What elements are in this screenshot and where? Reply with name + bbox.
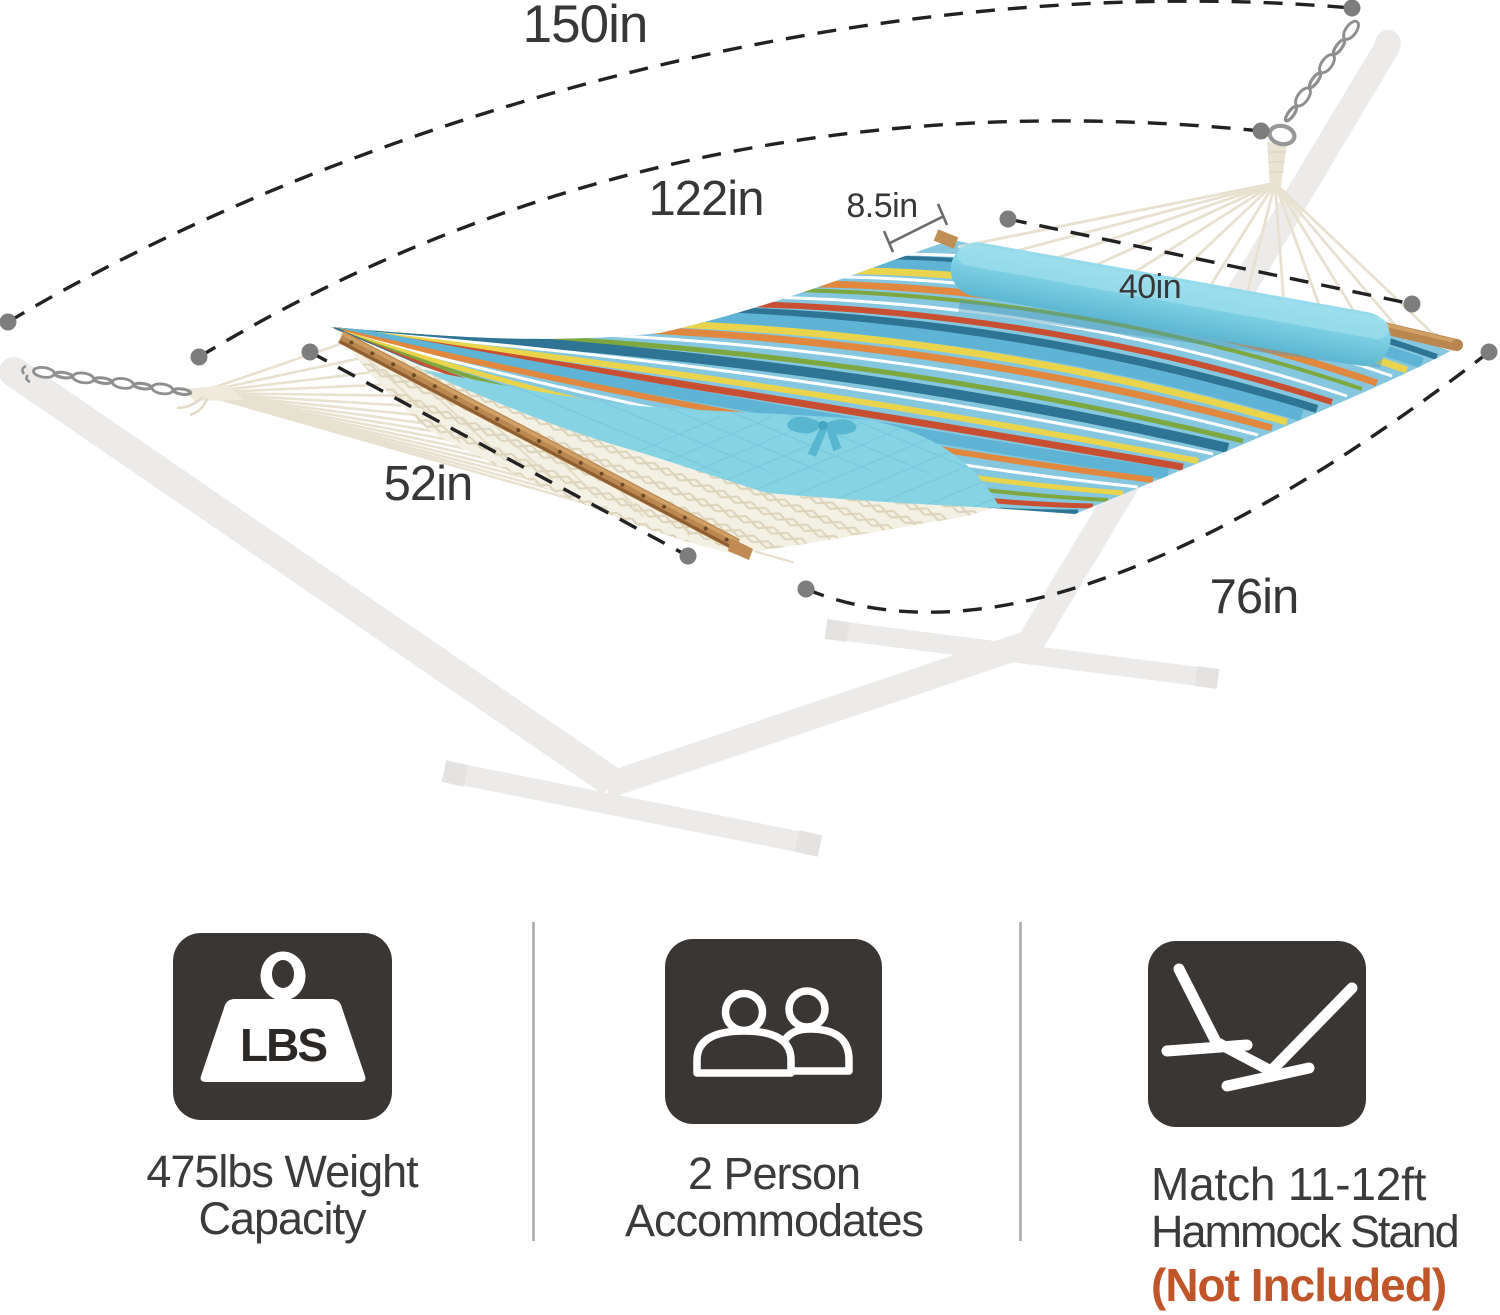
svg-text:150in: 150in (523, 0, 648, 54)
svg-text:52in: 52in (384, 457, 473, 511)
svg-text:8.5in: 8.5in (846, 187, 917, 225)
svg-text:122in: 122in (649, 172, 764, 226)
svg-text:LBS: LBS (240, 1019, 326, 1071)
svg-text:Match 11-12ft: Match 11-12ft (1151, 1158, 1427, 1210)
svg-text:40in: 40in (1119, 268, 1181, 306)
svg-text:(Not Included): (Not Included) (1151, 1259, 1446, 1311)
svg-text:2 Person: 2 Person (688, 1148, 860, 1199)
svg-text:Hammock Stand: Hammock Stand (1151, 1206, 1458, 1257)
svg-text:475lbs Weight: 475lbs Weight (146, 1146, 419, 1197)
svg-text:Accommodates: Accommodates (625, 1195, 923, 1246)
svg-text:Capacity: Capacity (198, 1193, 367, 1244)
svg-text:76in: 76in (1210, 570, 1299, 624)
